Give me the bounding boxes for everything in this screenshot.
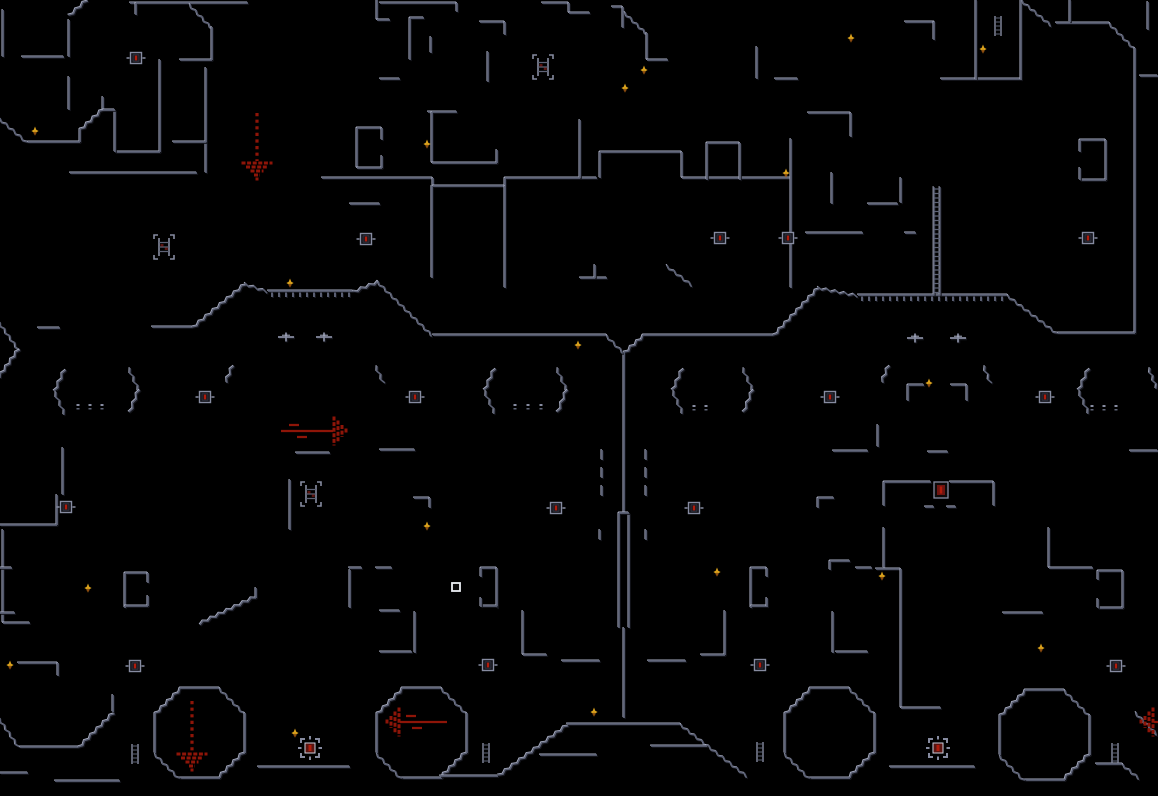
- wall-segment: [618, 512, 620, 629]
- wall-segment: [401, 777, 443, 779]
- wall-segment: [817, 497, 835, 499]
- wall-segment: [27, 141, 81, 143]
- wall-segment: [993, 481, 995, 507]
- wall-segment: [179, 59, 213, 61]
- wall-segment: [147, 595, 149, 607]
- wall-segment: [487, 51, 489, 83]
- wall-segment: [257, 766, 351, 768]
- wall-segment: [2, 529, 4, 624]
- wall-segment: [599, 529, 601, 541]
- player-marker: [452, 583, 460, 591]
- wall-segment: [1024, 779, 1066, 781]
- wall-segment: [179, 687, 221, 689]
- wall-segment: [356, 127, 358, 169]
- wall-segment: [0, 772, 29, 774]
- wall-segment: [480, 597, 482, 608]
- wall-segment: [601, 467, 603, 479]
- wall-segment: [456, 2, 458, 13]
- wall-segment: [809, 687, 851, 689]
- wall-segment: [496, 567, 498, 609]
- wall-segment: [135, 2, 137, 16]
- wall-segment: [348, 567, 363, 569]
- wall-segment: [1097, 570, 1124, 572]
- wall-segment: [504, 177, 598, 179]
- wall-segment: [1079, 167, 1081, 181]
- wall-segment: [2, 622, 31, 624]
- wall-segment: [409, 17, 411, 61]
- wall-segment: [539, 754, 598, 756]
- wall-segment: [112, 694, 114, 713]
- wall-segment: [750, 605, 768, 607]
- wall-segment: [79, 128, 81, 143]
- wall-segment: [883, 481, 885, 507]
- wall-segment: [379, 449, 416, 451]
- wall-segment: [1122, 570, 1124, 609]
- wall-segment: [255, 587, 257, 599]
- wall-segment: [646, 32, 648, 61]
- wall-segment: [831, 172, 833, 205]
- wall-segment: [211, 26, 213, 61]
- wall-segment: [1097, 607, 1124, 609]
- wall-segment: [807, 112, 852, 114]
- wall-segment: [645, 449, 647, 461]
- wall-segment: [645, 467, 647, 479]
- wall-segment: [147, 572, 149, 584]
- automap-canvas[interactable]: [0, 0, 1158, 796]
- wall-segment: [622, 6, 624, 29]
- wall-segment: [466, 712, 468, 754]
- wall-segment: [522, 654, 548, 656]
- wall-segment: [1048, 567, 1094, 569]
- wall-segment: [0, 524, 58, 526]
- wall-segment: [681, 177, 792, 179]
- wall-segment: [645, 529, 647, 541]
- wall-segment: [1057, 332, 1136, 334]
- wall-segment: [114, 109, 116, 153]
- wall-segment: [321, 177, 434, 179]
- wall-segment: [179, 777, 221, 779]
- wall-segment: [927, 451, 949, 453]
- wall-segment: [56, 494, 58, 526]
- wall-segment: [205, 67, 207, 174]
- wall-segment: [432, 334, 608, 336]
- wall-segment: [1079, 139, 1081, 153]
- wall-segment: [809, 777, 851, 779]
- wall-segment: [68, 76, 70, 111]
- wall-segment: [1079, 139, 1107, 141]
- wall-segment: [159, 59, 161, 153]
- wall-segment: [413, 497, 431, 499]
- wall-segment: [855, 567, 873, 569]
- wall-segment: [647, 660, 687, 662]
- wall-segment: [568, 12, 591, 14]
- wall-segment: [376, 0, 378, 21]
- wall-segment: [379, 78, 401, 80]
- wall-segment: [907, 384, 925, 386]
- red-box-icon: [934, 482, 948, 498]
- wall-segment: [541, 2, 570, 4]
- wall-segment: [414, 611, 416, 654]
- wall-segment: [1129, 450, 1158, 452]
- wall-segment: [642, 334, 774, 336]
- wall-segment: [379, 2, 458, 4]
- wall-segment: [480, 567, 482, 578]
- wall-segment: [1097, 570, 1099, 581]
- wall-segment: [69, 172, 198, 174]
- wall-segment: [601, 485, 603, 497]
- wall-segment: [480, 567, 498, 569]
- wall-segment: [832, 611, 834, 654]
- wall-segment: [790, 138, 792, 289]
- automap-viewport[interactable]: [0, 0, 1158, 796]
- wall-segment: [599, 151, 601, 179]
- wall-segment: [17, 662, 59, 664]
- wall-segment: [875, 568, 902, 570]
- wall-segment: [579, 277, 608, 279]
- wall-segment: [379, 610, 401, 612]
- wall-segment: [1089, 714, 1091, 756]
- wall-segment: [706, 142, 741, 144]
- wall-segment: [975, 0, 977, 81]
- wall-segment: [381, 127, 383, 141]
- wall-segment: [124, 572, 126, 609]
- wall-segment: [401, 687, 443, 689]
- wall-segment: [850, 112, 852, 138]
- wall-segment: [431, 111, 433, 164]
- wall-segment: [1097, 598, 1099, 609]
- wall-segment: [774, 78, 799, 80]
- wall-segment: [349, 203, 381, 205]
- wall-segment: [700, 654, 726, 656]
- wall-segment: [356, 127, 383, 129]
- wall-segment: [949, 481, 995, 483]
- wall-segment: [114, 151, 161, 153]
- wall-segment: [2, 9, 4, 58]
- wall-segment: [439, 775, 499, 777]
- wall-segment: [724, 610, 726, 656]
- wall-segment: [766, 567, 768, 578]
- wall-segment: [151, 326, 193, 328]
- wall-segment: [594, 264, 596, 279]
- wall-segment: [62, 447, 64, 496]
- wall-segment: [756, 46, 758, 80]
- wall-segment: [904, 232, 917, 234]
- wall-segment: [376, 19, 391, 21]
- wall-segment: [479, 21, 506, 23]
- wall-segment: [904, 21, 936, 23]
- wall-segment: [409, 17, 425, 19]
- wall-segment: [623, 351, 625, 514]
- wall-segment: [1024, 689, 1066, 691]
- wall-segment: [1048, 527, 1050, 569]
- wall-segment: [356, 167, 383, 169]
- wall-segment: [102, 109, 116, 111]
- wall-segment: [0, 612, 16, 614]
- wall-segment: [618, 512, 630, 514]
- wall-segment: [504, 185, 506, 289]
- wall-segment: [375, 567, 393, 569]
- wall-segment: [874, 712, 876, 754]
- wall-segment: [1079, 179, 1107, 181]
- wall-segment: [628, 512, 630, 629]
- wall-segment: [244, 712, 246, 754]
- wall-segment: [68, 19, 70, 58]
- wall-segment: [645, 485, 647, 497]
- wall-segment: [924, 506, 935, 508]
- wall-segment: [381, 155, 383, 169]
- wall-segment: [750, 567, 768, 569]
- wall-segment: [681, 151, 683, 179]
- wall-segment: [57, 662, 59, 677]
- wall-segment: [504, 21, 506, 36]
- wall-segment: [784, 712, 786, 754]
- wall-segment: [650, 745, 708, 747]
- wall-segment: [376, 712, 378, 754]
- wall-segment: [805, 232, 864, 234]
- wall-segment: [1134, 47, 1136, 334]
- wall-segment: [522, 610, 524, 656]
- wall-segment: [1095, 763, 1124, 765]
- wall-segment: [496, 149, 498, 164]
- wall-segment: [430, 36, 432, 54]
- wall-segment: [623, 627, 625, 719]
- wall-segment: [124, 572, 149, 574]
- wall-segment: [429, 497, 431, 509]
- wall-segment: [832, 450, 869, 452]
- wall-segment: [900, 568, 902, 709]
- wall-segment: [817, 497, 819, 509]
- wall-segment: [706, 142, 708, 181]
- wall-segment: [766, 597, 768, 608]
- wall-segment: [349, 569, 351, 609]
- wall-segment: [829, 560, 851, 562]
- wall-segment: [561, 660, 601, 662]
- wall-segment: [19, 746, 79, 748]
- wall-segment: [154, 712, 156, 754]
- wall-segment: [750, 567, 752, 609]
- wall-segment: [54, 780, 121, 782]
- wall-segment: [940, 78, 1022, 80]
- wall-segment: [1147, 1, 1149, 31]
- wall-segment: [946, 506, 957, 508]
- wall-segment: [37, 327, 61, 329]
- wall-segment: [739, 142, 741, 181]
- wall-segment: [566, 723, 682, 725]
- wall-segment: [867, 203, 899, 205]
- wall-segment: [0, 567, 13, 569]
- wall-segment: [579, 119, 581, 179]
- wall-segment: [431, 162, 498, 164]
- wall-segment: [1139, 75, 1158, 77]
- wall-segment: [883, 481, 932, 483]
- wall-segment: [1069, 0, 1071, 23]
- wall-segment: [829, 560, 831, 571]
- wall-segment: [1002, 612, 1044, 614]
- wall-segment: [889, 766, 976, 768]
- wall-segment: [646, 59, 669, 61]
- wall-segment: [601, 449, 603, 461]
- wall-segment: [172, 141, 207, 143]
- wall-segment: [900, 177, 902, 204]
- wall-segment: [933, 21, 935, 41]
- wall-segment: [1055, 22, 1111, 24]
- wall-segment: [432, 185, 506, 187]
- wall-segment: [950, 384, 968, 386]
- wall-segment: [883, 527, 885, 569]
- wall-segment: [431, 185, 433, 279]
- wall-segment: [999, 714, 1001, 756]
- wall-segment: [835, 651, 869, 653]
- wall-segment: [1105, 139, 1107, 181]
- wall-segment: [907, 384, 909, 402]
- wall-segment: [124, 605, 149, 607]
- wall-segment: [966, 384, 968, 402]
- wall-segment: [21, 56, 65, 58]
- wall-segment: [379, 651, 413, 653]
- wall-segment: [1020, 0, 1022, 81]
- wall-segment: [900, 707, 942, 709]
- wall-segment: [295, 452, 331, 454]
- wall-segment: [877, 424, 879, 448]
- wall-segment: [289, 479, 291, 531]
- wall-segment: [599, 151, 683, 153]
